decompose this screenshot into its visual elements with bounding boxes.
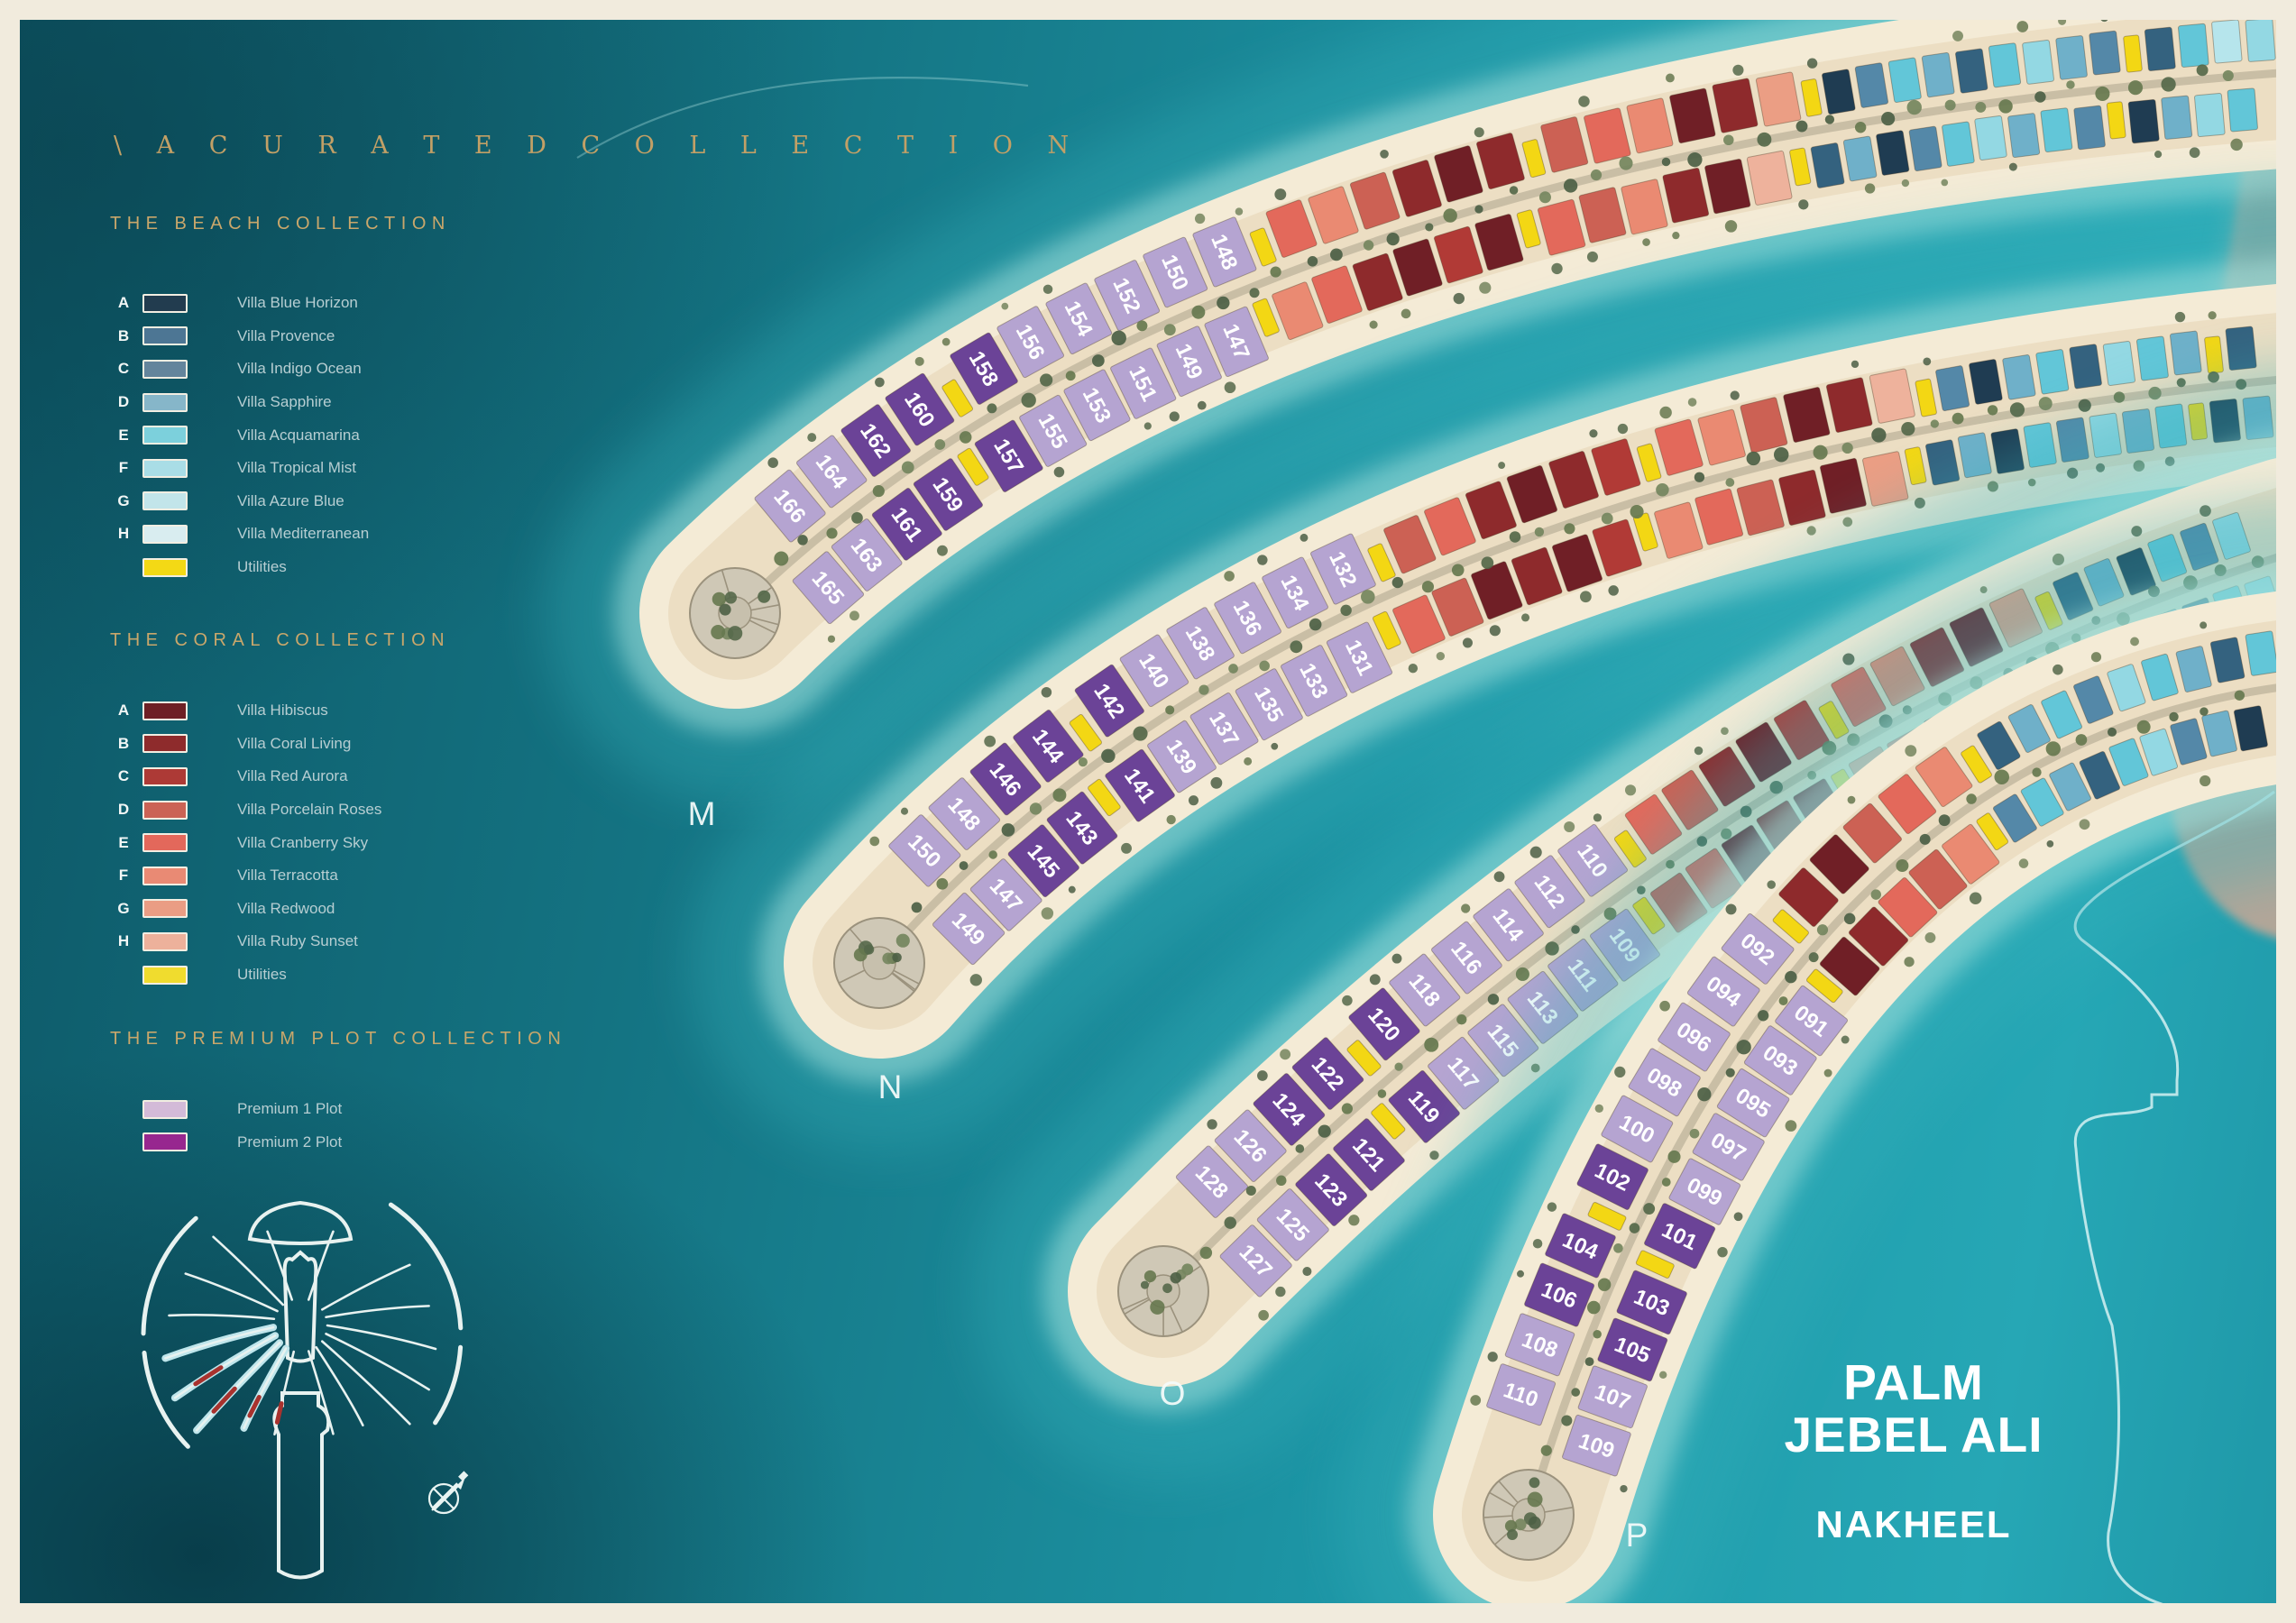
legend-key: D [110,393,137,411]
plot[interactable] [2170,331,2201,375]
plot[interactable] [2211,20,2242,63]
plot[interactable] [2178,23,2209,68]
legend-swatch [142,525,188,544]
legend-key: H [110,932,137,950]
legend-item[interactable]: Premium 1 Plot [110,1093,566,1126]
legend-swatch [142,701,188,720]
legend-swatch [142,294,188,313]
legend-item[interactable]: AVilla Blue Horizon [110,287,451,320]
utility-plot [2204,336,2223,374]
plot[interactable] [1942,122,1974,167]
legend-item[interactable]: Utilities [110,958,450,992]
legend-key: E [110,426,137,445]
plot[interactable] [2089,31,2121,75]
legend-label: Villa Tropical Mist [237,459,356,477]
compass-icon [429,1471,468,1513]
legend-label: Villa Azure Blue [237,492,344,510]
tip-roundabout [1483,1470,1574,1560]
legend-swatch [142,426,188,445]
plot[interactable] [2245,20,2276,62]
legend-label: Villa Terracotta [237,867,338,885]
legend-item[interactable]: FVilla Terracotta [110,859,450,893]
plot[interactable] [2074,105,2106,150]
legend-swatch [142,867,188,885]
legend-item[interactable]: CVilla Red Aurora [110,760,450,793]
legend-item[interactable]: GVilla Azure Blue [110,485,451,518]
plot[interactable] [2128,99,2159,143]
legend-item[interactable]: Utilities [110,551,451,584]
legend-label: Villa Cranberry Sky [237,834,368,852]
legend-title-coral: THE CORAL COLLECTION [110,630,450,651]
plot[interactable] [2162,96,2192,140]
legend-item[interactable]: HVilla Mediterranean [110,518,451,551]
legend-title-beach: THE BEACH COLLECTION [110,214,451,234]
legend-label: Premium 1 Plot [237,1100,342,1118]
page-title: \ A C U R A T E D C O L L E C T I O N [114,132,1082,160]
plot[interactable] [1988,43,2021,88]
poster-frame: 1661641621601581561541521501481651631611… [0,0,2296,1623]
plot[interactable] [2227,88,2258,132]
legend-item[interactable]: BVilla Coral Living [110,728,450,761]
legend-label: Premium 2 Plot [237,1133,342,1151]
plot[interactable] [2103,341,2135,386]
plot[interactable] [2041,108,2072,152]
legend-swatch [142,1132,188,1151]
frond-label-O: O [1160,1375,1186,1412]
legend-key: E [110,834,137,852]
legend-key: B [110,327,137,345]
plot[interactable] [2194,93,2225,136]
legend-key: C [110,360,137,378]
masterplan-map: 1661641621601581561541521501481651631611… [20,20,2276,1603]
legend-swatch [142,558,188,577]
legend-label: Villa Indigo Ocean [237,360,362,378]
plot[interactable] [1888,58,1922,103]
legend-key: C [110,767,137,785]
legend-label: Villa Ruby Sunset [237,932,358,950]
legend-section-coral: THE CORAL COLLECTIONAVilla HibiscusBVill… [110,630,450,991]
plot[interactable] [2007,113,2040,157]
utility-plot [2123,35,2142,73]
frond-label-P: P [1626,1517,1649,1554]
legend-label: Villa Acquamarina [237,426,360,445]
legend-key: D [110,801,137,819]
legend-label: Villa Provence [237,327,335,345]
plot[interactable] [1955,49,1988,94]
legend-section-beach: THE BEACH COLLECTIONAVilla Blue HorizonB… [110,214,451,583]
plot[interactable] [2035,349,2069,394]
legend-swatch [142,1100,188,1119]
legend-label: Utilities [237,966,287,984]
legend-swatch [142,734,188,753]
legend-title-premium: THE PREMIUM PLOT COLLECTION [110,1029,566,1050]
legend-section-premium: THE PREMIUM PLOT COLLECTIONPremium 1 Plo… [110,1029,566,1159]
plot[interactable] [1975,115,2007,160]
legend-swatch [142,899,188,918]
legend-label: Villa Coral Living [237,735,351,753]
legend-item[interactable]: CVilla Indigo Ocean [110,353,451,386]
plot[interactable] [2226,326,2256,371]
plot[interactable] [2022,40,2053,84]
legend-item[interactable]: FVilla Tropical Mist [110,452,451,485]
legend-swatch [142,459,188,478]
plot[interactable] [2136,336,2168,381]
tip-roundabout [690,568,780,658]
legend-item[interactable]: EVilla Acquamarina [110,418,451,452]
legend-item[interactable]: AVilla Hibiscus [110,694,450,728]
brand-line2: JEBEL ALI [1661,1408,2166,1461]
legend-key: G [110,900,137,918]
plot[interactable] [1909,126,1942,171]
legend-swatch [142,966,188,985]
palm-minimap-icon [143,1203,461,1578]
plot[interactable] [2144,27,2175,71]
legend-label: Villa Sapphire [237,393,332,411]
legend-key: F [110,459,137,477]
legend-item[interactable]: GVilla Redwood [110,893,450,926]
legend-label: Villa Mediterranean [237,525,369,543]
plot[interactable] [2056,35,2088,79]
legend-label: Villa Blue Horizon [237,294,358,312]
legend-key: F [110,867,137,885]
nakheel-logo: NAKHEEL [1661,1503,2166,1546]
branding-block: PALM JEBEL ALI NAKHEEL [1661,1356,2166,1546]
legend-label: Villa Porcelain Roses [237,801,381,819]
tip-roundabout [1118,1246,1208,1336]
legend-swatch [142,767,188,786]
legend-key: B [110,735,137,753]
legend-key: G [110,492,137,510]
legend-item[interactable]: DVilla Porcelain Roses [110,793,450,827]
frond-label-M: M [688,795,716,832]
legend-item[interactable]: Premium 2 Plot [110,1126,566,1160]
frond-label-N: N [878,1068,903,1105]
brand-line1: PALM [1661,1356,2166,1408]
legend-label: Villa Redwood [237,900,335,918]
legend-swatch [142,491,188,510]
legend-key: A [110,701,137,720]
legend-item[interactable]: EVilla Cranberry Sky [110,826,450,859]
plot[interactable] [1922,52,1954,97]
legend-item[interactable]: DVilla Sapphire [110,386,451,419]
legend-swatch [142,326,188,345]
legend-key: H [110,525,137,543]
plot[interactable] [2070,344,2102,390]
utility-plot [2107,102,2126,140]
tip-roundabout [834,918,924,1008]
legend-swatch [142,393,188,412]
legend-label: Utilities [237,558,287,576]
legend-swatch [142,932,188,951]
legend-label: Villa Hibiscus [237,701,328,720]
fronds-layer: 1661641621601581561541521501481651631611… [690,20,2276,1560]
legend-swatch [142,801,188,820]
legend-key: A [110,294,137,312]
legend-item[interactable]: BVilla Provence [110,320,451,353]
legend-swatch [142,360,188,379]
legend-label: Villa Red Aurora [237,767,348,785]
legend-item[interactable]: HVilla Ruby Sunset [110,925,450,958]
legend-swatch [142,833,188,852]
